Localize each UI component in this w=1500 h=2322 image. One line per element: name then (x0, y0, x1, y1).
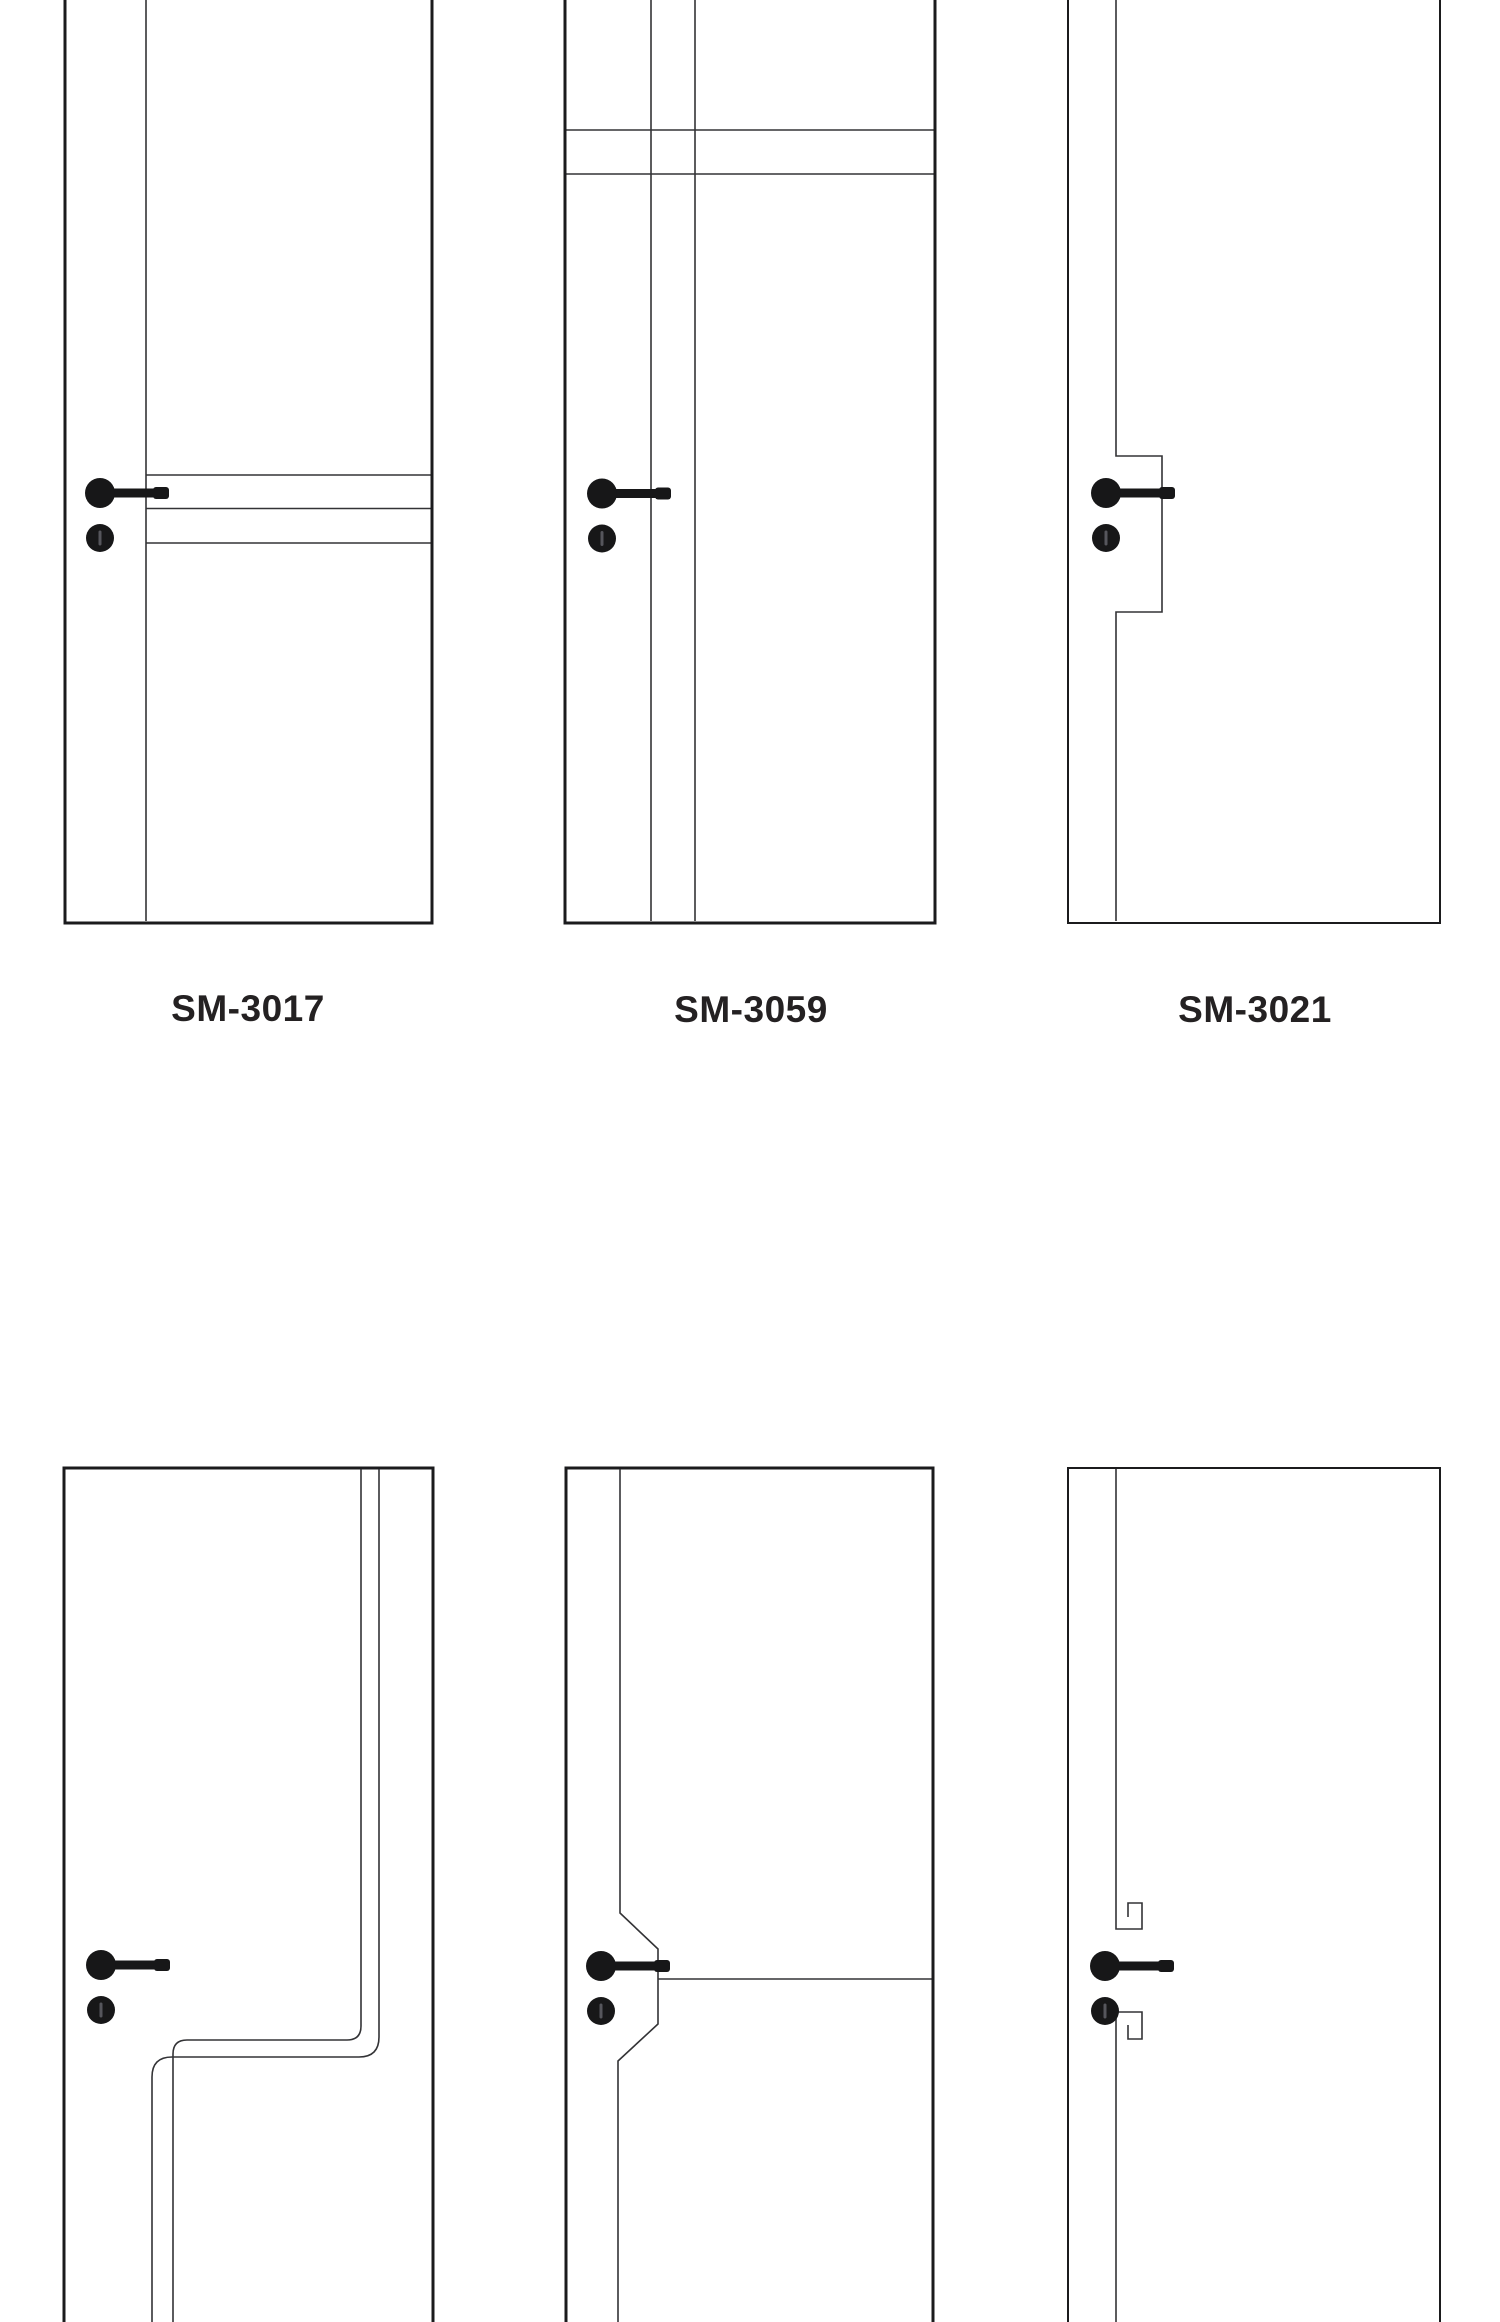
door-lever-handle-icon (1090, 1951, 1174, 2025)
door-card-unlabeled-1[interactable] (64, 1468, 433, 2322)
door-outline (65, 0, 432, 923)
door-outline (565, 0, 935, 923)
door-outline (1068, 1468, 1440, 2322)
door-card-sm-3017[interactable]: SM-3017 (65, 0, 432, 1029)
panel-groove-notch (1116, 0, 1162, 921)
product-model-label: SM-3059 (674, 989, 828, 1030)
panel-groove-hook-upper (1116, 1469, 1142, 1929)
panel-groove-hook-lower (1116, 2012, 1142, 2039)
door-outline (566, 1468, 933, 2322)
door-lever-handle-icon (86, 1950, 170, 2024)
product-model-label: SM-3021 (1178, 989, 1332, 1030)
door-card-sm-3059[interactable]: SM-3059 (565, 0, 935, 1030)
door-lever-handle-icon (587, 479, 671, 553)
door-outline (64, 1468, 433, 2322)
door-lever-handle-icon (85, 478, 169, 552)
panel-groove-step-inner (173, 1469, 361, 2322)
door-card-unlabeled-2[interactable] (566, 1468, 933, 2322)
panel-groove-step-outer (152, 1469, 379, 2322)
door-catalog-page: SM-3017 SM-3059 SM-3021 (0, 0, 1500, 2322)
product-model-label: SM-3017 (171, 988, 325, 1029)
door-card-unlabeled-3[interactable] (1068, 1468, 1440, 2322)
door-card-sm-3021[interactable]: SM-3021 (1068, 0, 1440, 1030)
door-outline (1068, 0, 1440, 923)
panel-groove-chamfer (618, 1469, 658, 2322)
